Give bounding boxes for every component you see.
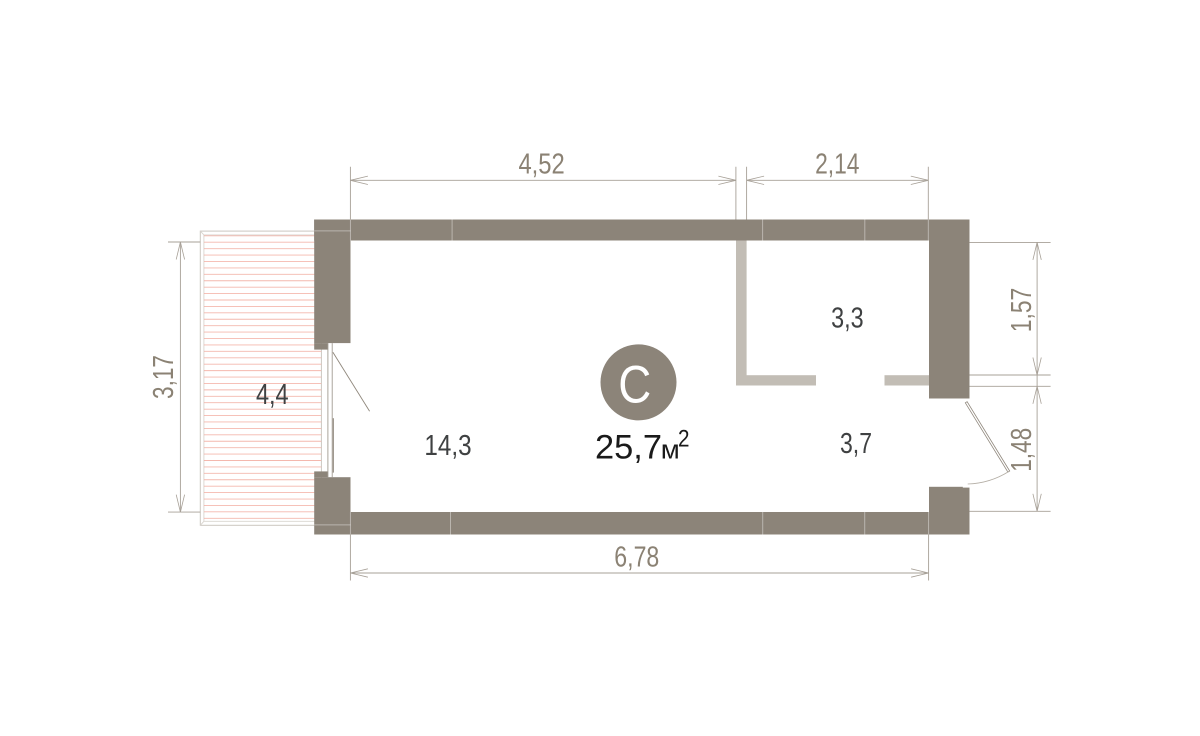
svg-text:С: С (618, 356, 651, 415)
svg-text:1,57: 1,57 (1006, 288, 1038, 333)
svg-text:2: 2 (678, 426, 690, 453)
svg-text:2,14: 2,14 (815, 148, 860, 180)
svg-text:3,17: 3,17 (148, 355, 180, 399)
svg-text:3,7: 3,7 (840, 428, 872, 460)
svg-text:25,7: 25,7 (595, 428, 662, 466)
svg-text:4,52: 4,52 (518, 148, 564, 180)
svg-text:м: м (661, 434, 680, 464)
svg-text:6,78: 6,78 (614, 541, 659, 573)
svg-text:1,48: 1,48 (1006, 428, 1038, 472)
svg-text:4,4: 4,4 (256, 379, 289, 411)
svg-text:14,3: 14,3 (424, 430, 471, 462)
svg-text:3,3: 3,3 (831, 303, 864, 335)
